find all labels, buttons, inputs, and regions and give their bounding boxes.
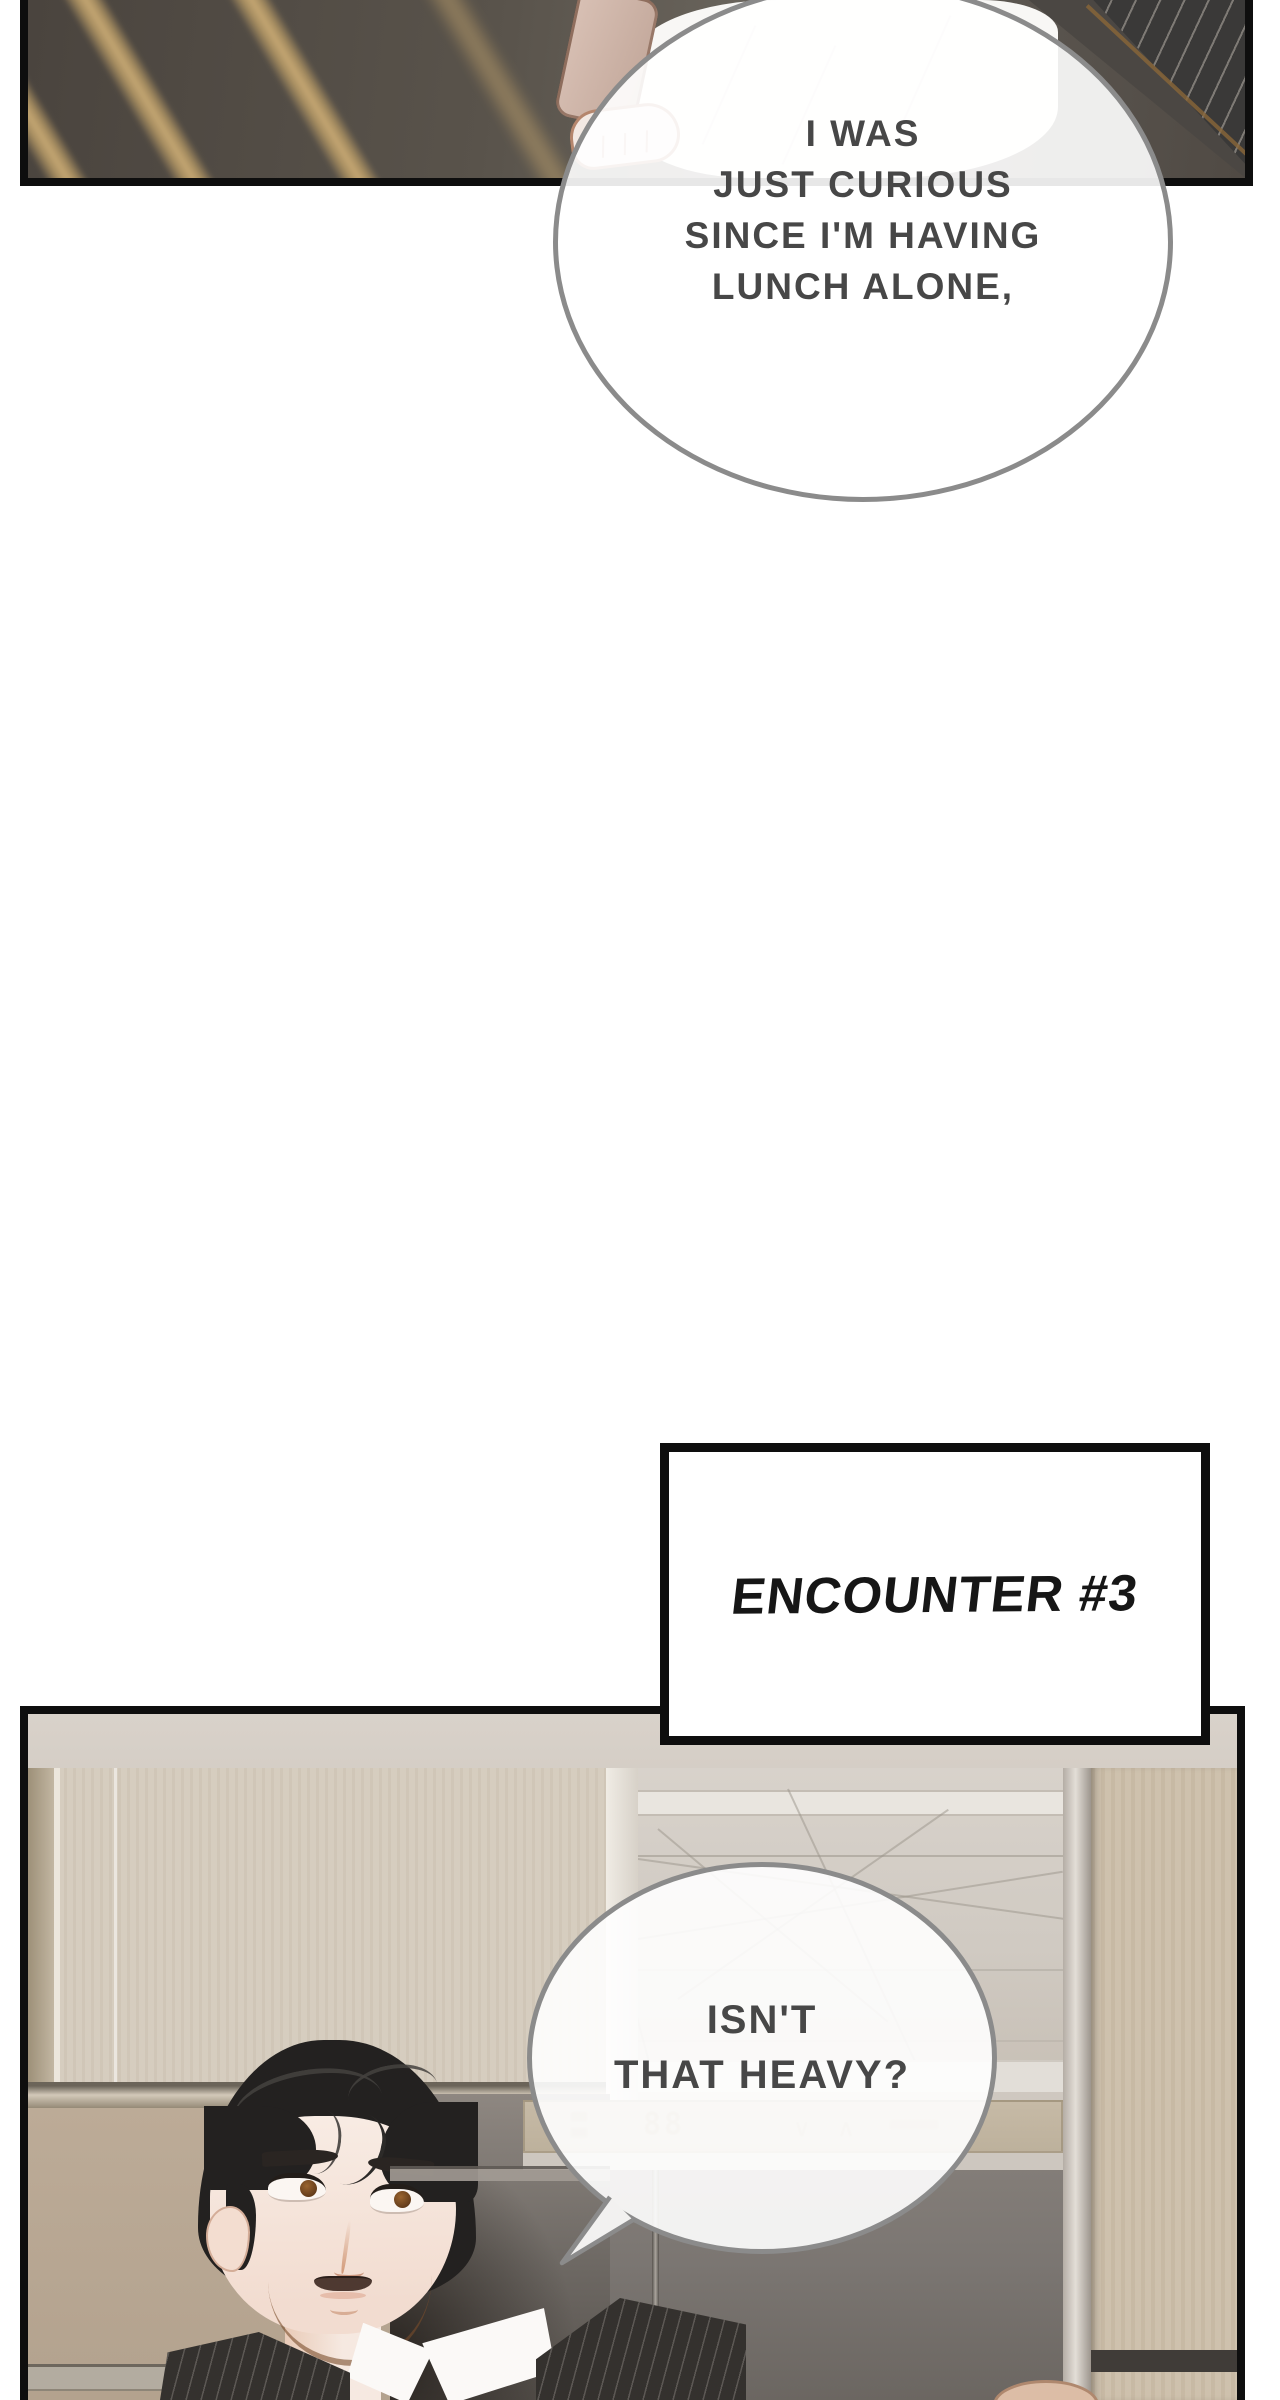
speech-line: THAT HEAVY? <box>614 2048 910 2103</box>
ceiling-beam-stripe <box>196 0 414 186</box>
speech-line: JUST CURIOUS <box>713 159 1012 210</box>
eye-left <box>268 2173 326 2202</box>
metal-frame-strip <box>1063 1768 1091 2400</box>
speech-bubble-lunch: I WAS JUST CURIOUS SINCE I'M HAVING LUNC… <box>553 0 1173 502</box>
glass-frame-line <box>638 1855 1063 1857</box>
speech-bubble-tail <box>545 2185 705 2275</box>
webtoon-page: I WAS JUST CURIOUS SINCE I'M HAVING LUNC… <box>0 0 1280 2400</box>
caption-text: ENCOUNTER #3 <box>728 1563 1141 1626</box>
speech-line: ISN'T <box>707 1993 818 2048</box>
speech-line: LUNCH ALONE, <box>712 261 1014 312</box>
eye-right <box>370 2184 424 2214</box>
encounter-caption-box: ENCOUNTER #3 <box>660 1443 1210 1745</box>
speech-line: I WAS <box>806 108 921 159</box>
iris <box>300 2180 317 2197</box>
speech-line: SINCE I'M HAVING <box>685 210 1042 261</box>
glass-frame-bar <box>638 1790 1063 1816</box>
pillar-dark-band <box>1091 2350 1237 2372</box>
wood-pillar <box>1091 1768 1237 2400</box>
iris <box>394 2191 411 2208</box>
